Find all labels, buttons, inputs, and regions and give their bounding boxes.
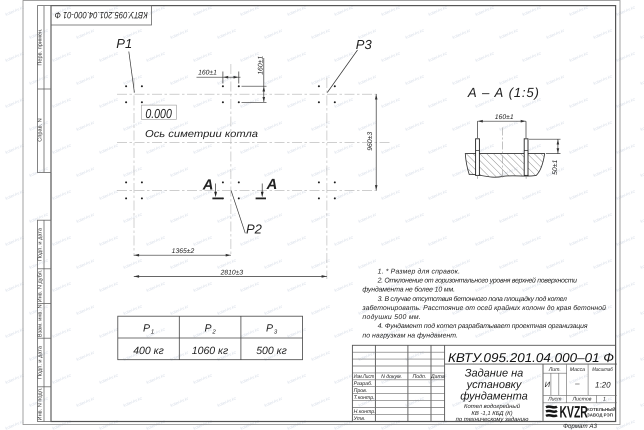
svg-text:1. * Размер для справок.: 1. * Размер для справок.: [378, 269, 460, 276]
svg-text:1: 1: [603, 397, 606, 403]
svg-text:0.000: 0.000: [145, 106, 172, 121]
svg-text:А – А (1:5): А – А (1:5): [467, 85, 540, 100]
svg-text:3. В случае отсутствия бетонно: 3. В случае отсутствия бетонного пола пл…: [378, 295, 567, 303]
svg-text:Масса: Масса: [570, 367, 585, 373]
svg-text:фундамента не более 10 мм.: фундамента не более 10 мм.: [362, 286, 455, 294]
svg-text:Подп. и дата: Подп. и дата: [38, 227, 44, 261]
svg-text:И: И: [545, 380, 551, 389]
svg-text:Утв.: Утв.: [354, 416, 366, 422]
svg-text:400 кг: 400 кг: [133, 345, 164, 357]
svg-text:Котел водогрейный: Котел водогрейный: [464, 403, 521, 410]
svg-text:подушки 500 мм.: подушки 500 мм.: [362, 314, 420, 321]
svg-text:Подп.: Подп.: [412, 374, 426, 380]
svg-text:1:20: 1:20: [595, 380, 611, 389]
svg-text:P3: P3: [356, 37, 373, 52]
svg-text:Дата: Дата: [430, 374, 445, 380]
svg-text:1: 1: [151, 329, 154, 336]
svg-text:КВТУ.095.201.04.000-01 Ф: КВТУ.095.201.04.000-01 Ф: [55, 10, 148, 20]
svg-text:Формат А3: Формат А3: [563, 423, 597, 430]
svg-text:Изм.Лист: Изм.Лист: [354, 374, 375, 380]
svg-text:960±3: 960±3: [367, 132, 374, 151]
svg-text:1060 кг: 1060 кг: [192, 345, 228, 357]
svg-text:Лит.: Лит.: [548, 367, 561, 373]
svg-text:Подп. и дата: Подп. и дата: [38, 345, 44, 379]
svg-text:КВТУ.095.201.04.000–01 Ф: КВТУ.095.201.04.000–01 Ф: [448, 350, 614, 365]
svg-text:P: P: [266, 323, 273, 335]
svg-text:Лист: Лист: [547, 397, 562, 403]
svg-text:Взам. инв. N: Взам. инв. N: [38, 304, 44, 337]
svg-text:160±1: 160±1: [495, 114, 514, 121]
svg-text:Инв. N подл.: Инв. N подл.: [38, 387, 44, 420]
svg-text:1365±2: 1365±2: [172, 248, 195, 255]
svg-text:2. Отклонение от горизонтально: 2. Отклонение от горизонтального уровня …: [377, 277, 578, 285]
svg-text:Масштаб: Масштаб: [592, 367, 613, 373]
svg-text:по нагрузкам на фундамент.: по нагрузкам на фундамент.: [362, 332, 458, 339]
svg-text:2: 2: [211, 329, 216, 336]
svg-text:Т.контр.: Т.контр.: [354, 395, 375, 401]
svg-text:Справ. N: Справ. N: [38, 118, 44, 141]
svg-text:50±1: 50±1: [552, 160, 559, 175]
svg-text:Н.контр.: Н.контр.: [354, 409, 376, 415]
svg-text:Инв. N дубл.: Инв. N дубл.: [37, 269, 44, 302]
svg-text:160±1: 160±1: [257, 56, 264, 75]
svg-text:Задание на: Задание на: [465, 368, 524, 380]
svg-text:A: A: [266, 177, 278, 193]
svg-text:P: P: [143, 323, 150, 335]
svg-text:ЗАВОД РЭП: ЗАВОД РЭП: [587, 413, 613, 418]
svg-text:Ось симетрии котла: Ось симетрии котла: [145, 129, 258, 140]
svg-text:160±1: 160±1: [198, 70, 217, 77]
svg-text:установку: установку: [466, 379, 523, 391]
svg-text:Разраб.: Разраб.: [354, 381, 373, 387]
svg-text:КОТЕЛЬНЫЙ: КОТЕЛЬНЫЙ: [587, 407, 616, 412]
svg-text:P: P: [204, 323, 211, 335]
svg-text:4. Фундамент под котел разраба: 4. Фундамент под котел разрабатывает про…: [378, 322, 588, 330]
svg-text:забетонировать. Расстояние от: забетонировать. Расстояние от осей крайн…: [361, 304, 606, 312]
svg-text:Пров.: Пров.: [354, 388, 368, 394]
svg-text:KVZR: KVZR: [560, 403, 588, 421]
svg-text:P2: P2: [246, 221, 263, 236]
svg-text:P1: P1: [116, 36, 132, 51]
svg-text:Листов: Листов: [572, 397, 592, 403]
svg-text:A: A: [202, 178, 214, 194]
svg-text:2810±3: 2810±3: [220, 270, 244, 277]
svg-text:N докум.: N докум.: [381, 374, 402, 380]
svg-text:по техническому заданию: по техническому заданию: [456, 416, 529, 423]
svg-text:Перв. примен.: Перв. примен.: [38, 28, 44, 66]
svg-text:КВ -1,1 КБД (К): КВ -1,1 КБД (К): [471, 410, 512, 417]
svg-text:фундамента: фундамента: [460, 391, 528, 403]
svg-text:500 кг: 500 кг: [256, 345, 287, 357]
svg-text:–: –: [574, 379, 580, 388]
